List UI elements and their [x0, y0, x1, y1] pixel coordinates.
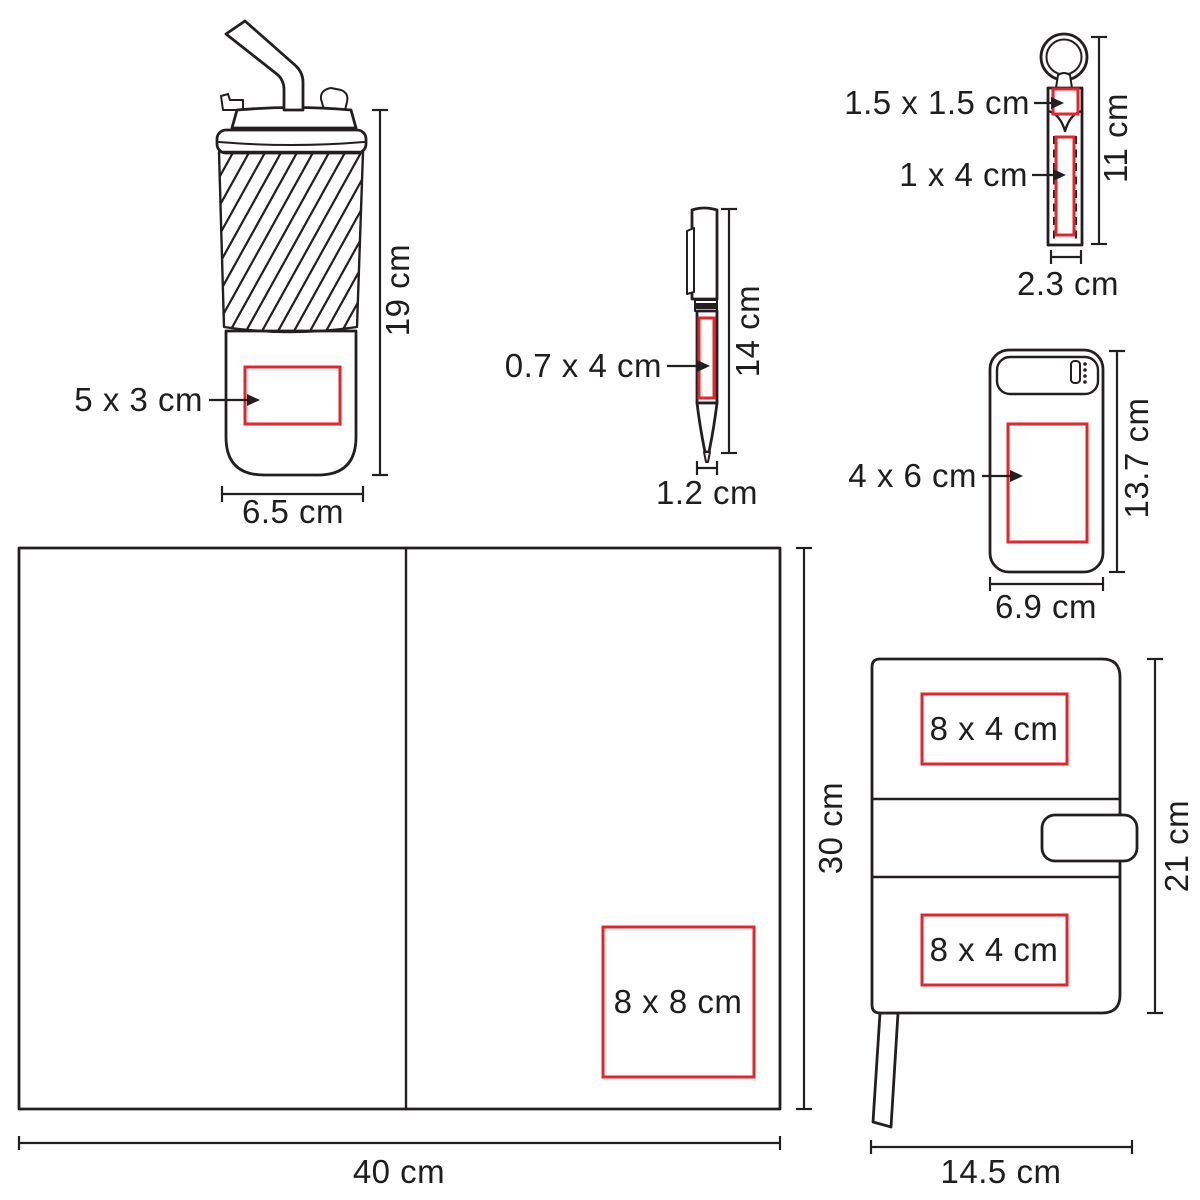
power-bank-led-1 [1083, 362, 1087, 366]
open-notebook-height-dimension: 30 cm [796, 548, 849, 1109]
keychain-connector [1056, 73, 1072, 88]
notebook-height-dimension: 21 cm [1147, 659, 1195, 1013]
open-notebook-print-area-label: 8 x 8 cm [614, 983, 743, 1020]
pen-width-dimension: 1.2 cm [656, 461, 758, 511]
notebook-width-label: 14.5 cm [941, 1153, 1062, 1190]
power-bank-width-dimension: 6.9 cm [990, 577, 1103, 625]
open-notebook-height-label: 30 cm [812, 782, 849, 874]
power-bank-led-3 [1083, 374, 1087, 378]
pen-clip [687, 228, 694, 294]
power-bank-height-dimension: 13.7 cm [1109, 351, 1155, 572]
tumbler-lid-ring [217, 130, 366, 153]
power-bank-print-area-label: 4 x 6 cm [848, 457, 977, 494]
tumbler-lid-knob [321, 88, 347, 110]
pen-width-label: 1.2 cm [656, 474, 758, 511]
power-bank-width-label: 6.9 cm [995, 588, 1097, 625]
pen-height-label: 14 cm [729, 285, 766, 377]
notebook-figure: 8 x 4 cm 8 x 4 cm 21 cm 14.5 cm [871, 659, 1195, 1190]
notebook-print-area-top-label: 8 x 4 cm [930, 710, 1059, 747]
pen-print-area-label: 0.7 x 4 cm [505, 347, 662, 384]
pen-taper [697, 403, 717, 452]
pen-cap [692, 208, 717, 299]
pen-band-dark [695, 303, 717, 309]
open-notebook-width-dimension: 40 cm [19, 1136, 780, 1190]
pen-tip [704, 452, 710, 462]
notebook-clasp [1042, 815, 1137, 861]
open-notebook-figure: 8 x 8 cm 30 cm 40 cm [19, 548, 849, 1190]
tumbler-height-dimension: 19 cm [372, 110, 416, 475]
tumbler-print-area-label: 5 x 3 cm [74, 381, 203, 418]
power-bank-led-4 [1083, 380, 1087, 384]
notebook-height-label: 21 cm [1158, 800, 1195, 892]
print-area-diagram: 5 x 3 cm 19 cm 6.5 cm 0.7 x 4 cm [0, 0, 1200, 1200]
open-notebook-cover [19, 548, 780, 1109]
keychain-print-area-top-label: 1.5 x 1.5 cm [844, 84, 1030, 121]
keychain-height-label: 11 cm [1097, 93, 1134, 183]
diagram-svg: 5 x 3 cm 19 cm 6.5 cm 0.7 x 4 cm [0, 0, 1200, 1200]
power-bank-led-2 [1083, 368, 1087, 372]
tumbler-straw [226, 21, 303, 110]
pen-height-dimension: 14 cm [721, 209, 766, 453]
pen-figure: 0.7 x 4 cm 14 cm 1.2 cm [505, 208, 766, 511]
notebook-print-area-bottom-label: 8 x 4 cm [930, 931, 1059, 968]
keychain-print-area-body-label: 1 x 4 cm [899, 156, 1028, 193]
power-bank-height-label: 13.7 cm [1118, 398, 1155, 519]
keychain-figure: 1.5 x 1.5 cm 1 x 4 cm 11 cm 2.3 cm [844, 34, 1134, 302]
notebook-width-dimension: 14.5 cm [871, 1140, 1132, 1190]
open-notebook-width-label: 40 cm [353, 1153, 445, 1190]
power-bank-figure: 4 x 6 cm 13.7 cm 6.9 cm [848, 350, 1155, 625]
tumbler-height-label: 19 cm [379, 244, 416, 336]
keychain-width-dimension: 2.3 cm [1017, 250, 1119, 302]
tumbler-lid-tab [221, 94, 243, 110]
keychain-width-label: 2.3 cm [1017, 265, 1119, 302]
tumbler-figure: 5 x 3 cm 19 cm 6.5 cm [74, 21, 448, 530]
notebook-bookmark [873, 1013, 898, 1127]
keychain-height-dimension: 11 cm [1091, 37, 1134, 244]
tumbler-width-label: 6.5 cm [242, 493, 344, 530]
tumbler-width-dimension: 6.5 cm [222, 486, 363, 530]
